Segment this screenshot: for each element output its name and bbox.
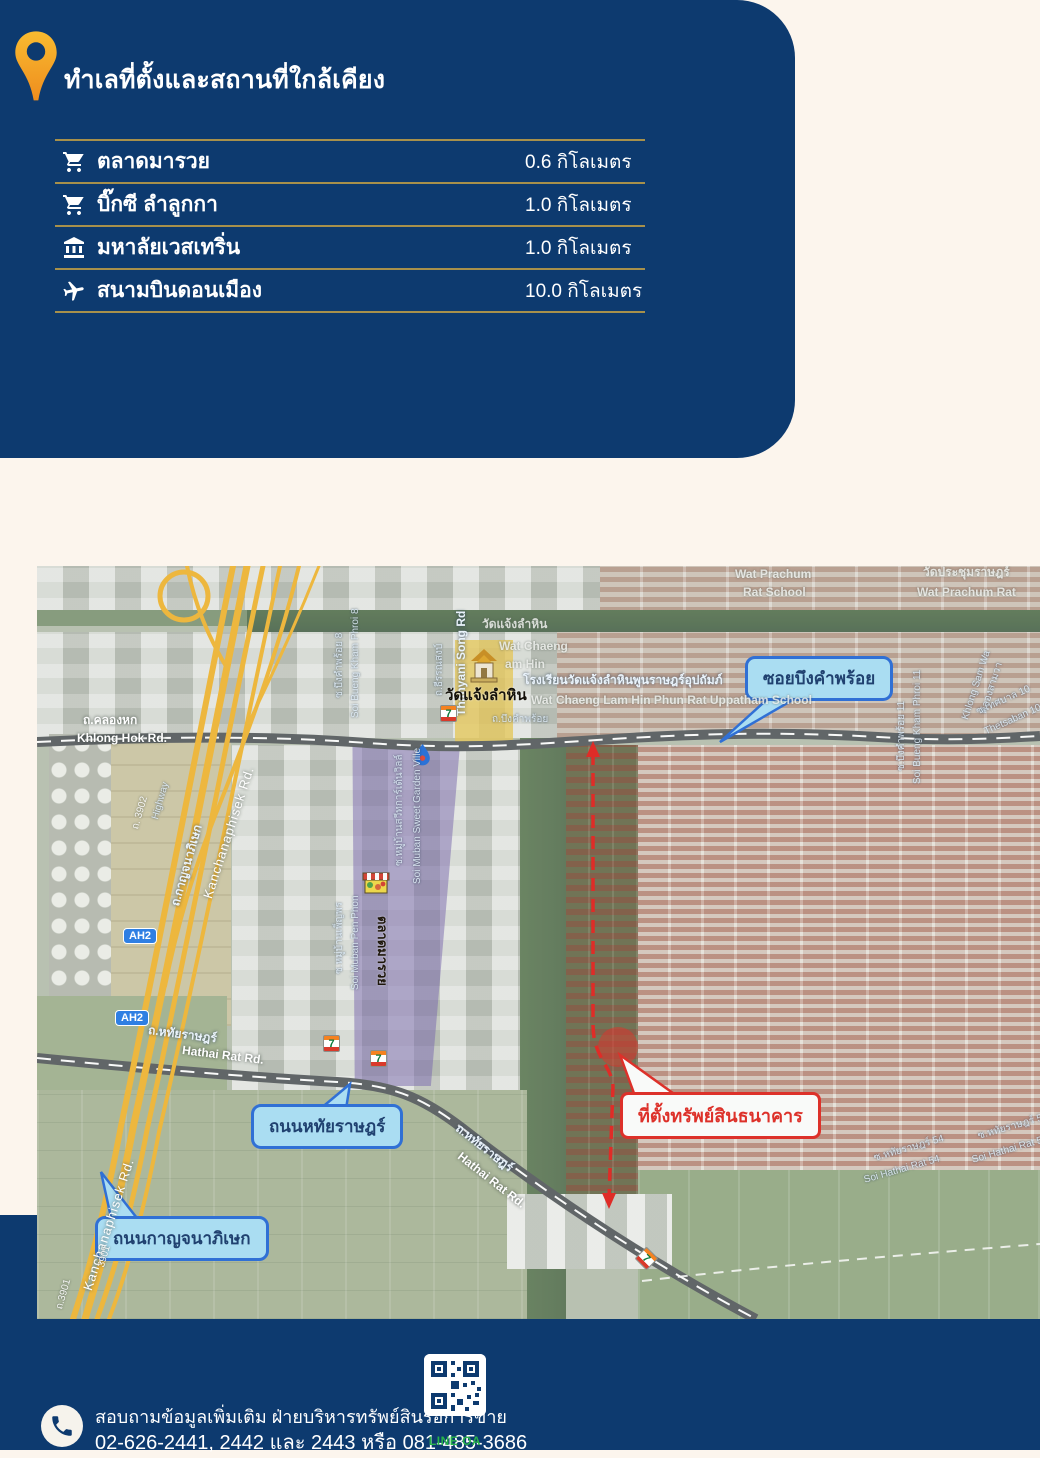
map-street-label: Wat Chaeng (499, 640, 568, 652)
line-qr-code (424, 1354, 486, 1416)
map-street-label: Rat School (743, 586, 806, 598)
poi-row: สนามบินดอนเมือง10.0 กิโลเมตร (55, 268, 645, 311)
poi-row: บิ๊กซี ลำลูกกา1.0 กิโลเมตร (55, 182, 645, 225)
map-street-label: วัดแจ้งลำหิน (445, 688, 527, 703)
poi-table: ตลาดมารวย0.6 กิโลเมตรบิ๊กซี ลำลูกกา1.0 ก… (55, 139, 645, 313)
map-street-label: วัดประชุมราษฎร์ (923, 566, 1010, 578)
map-street-label: Soi Bueng Kham Phroi 11 (913, 670, 923, 784)
plane-icon (55, 279, 93, 303)
seven-eleven-icon: 7 (370, 1050, 387, 1067)
map-street-label: ซ.หมู่บ้านสวีทการ์เด้นวิลล์ (395, 754, 405, 866)
seven-eleven-icon: 7 (323, 1035, 340, 1052)
map-street-label: Soi Muban Pen Phon (351, 895, 361, 990)
poi-distance: 0.6 กิโลเมตร (525, 147, 632, 177)
map-street-label: Wat Chaeng Lam Hin Phun Rat Uppatham Sch… (531, 694, 812, 706)
satellite-map: ซอยบึงคำพร้อย ถนนหทัยราษฎร์ ถนนกาญจนาภิเ… (37, 566, 1040, 1319)
map-street-label: Khlong Hok Rd. (77, 732, 167, 744)
phone-icon (41, 1405, 83, 1447)
poi-distance: 1.0 กิโลเมตร (525, 190, 632, 220)
map-street-label: Soi Bueng Kham Phroi 8 (351, 608, 361, 718)
poi-name: บิ๊กซี ลำลูกกา (93, 188, 218, 221)
map-street-label: ถ.คลองหก (83, 714, 137, 726)
callout-property-location: ที่ตั้งทรัพย์สินธนาคาร (620, 1092, 821, 1139)
page-title: ทำเลที่ตั้งและสถานที่ใกล้เคียง (64, 60, 385, 100)
map-street-label: ซ.บึงคำพร้อย 11 (897, 701, 907, 771)
seven-eleven-icon: 7 (440, 705, 457, 722)
route-shield-icon: AH2 (123, 928, 157, 944)
callout-hathai-rat-road: ถนนหทัยราษฎร์ (251, 1104, 403, 1149)
poi-row: มหาลัยเวสเทริ่น1.0 กิโลเมตร (55, 225, 645, 268)
map-street-label: วัดแจ้งลำหิน (482, 618, 547, 630)
cart-icon (55, 193, 93, 217)
poi-row: ตลาดมารวย0.6 กิโลเมตร (55, 139, 645, 182)
map-street-label: ซ.บึงคำพร้อย 8 (335, 633, 345, 698)
poi-name: มหาลัยเวสเทริ่น (93, 231, 240, 264)
map-street-label: ซ.หมู่บ้านเพ็ญพร (335, 902, 345, 974)
poi-name: สนามบินดอนเมือง (93, 274, 262, 307)
map-street-label: Wat Prachum (735, 568, 811, 580)
location-pin-icon (13, 27, 59, 107)
cart-icon (55, 150, 93, 174)
university-icon (55, 236, 93, 260)
map-street-label: Soi Muban Sweet Garden Ville (413, 748, 423, 884)
map-street-label: ถ.บึงคำพร้อย (492, 715, 548, 725)
route-shield-icon: AH2 (115, 1010, 149, 1026)
map-street-label: ตลาดมารวย (376, 916, 389, 986)
callout-kanchanaphisek-road: ถนนกาญจนาภิเษก (95, 1216, 269, 1261)
temple-icon (464, 648, 504, 684)
header-panel: ทำเลที่ตั้งและสถานที่ใกล้เคียง ตลาดมารวย… (0, 0, 795, 458)
map-street-label: Wat Prachum Rat (917, 586, 1016, 598)
market-stall-icon (362, 870, 390, 897)
poi-name: ตลาดมารวย (93, 145, 210, 178)
map-street-label: ถ.ธีรรณสงบ์ (435, 644, 445, 696)
poi-distance: 1.0 กิโลเมตร (525, 233, 632, 263)
line-oa-label: LINE OA (424, 1434, 486, 1448)
map-street-label: โรงเรียนวัดแจ้งลำหินพูนราษฎร์อุปถัมภ์ (523, 674, 723, 686)
poi-distance: 10.0 กิโลเมตร (525, 276, 642, 306)
map-street-label: am Hin (505, 658, 545, 670)
